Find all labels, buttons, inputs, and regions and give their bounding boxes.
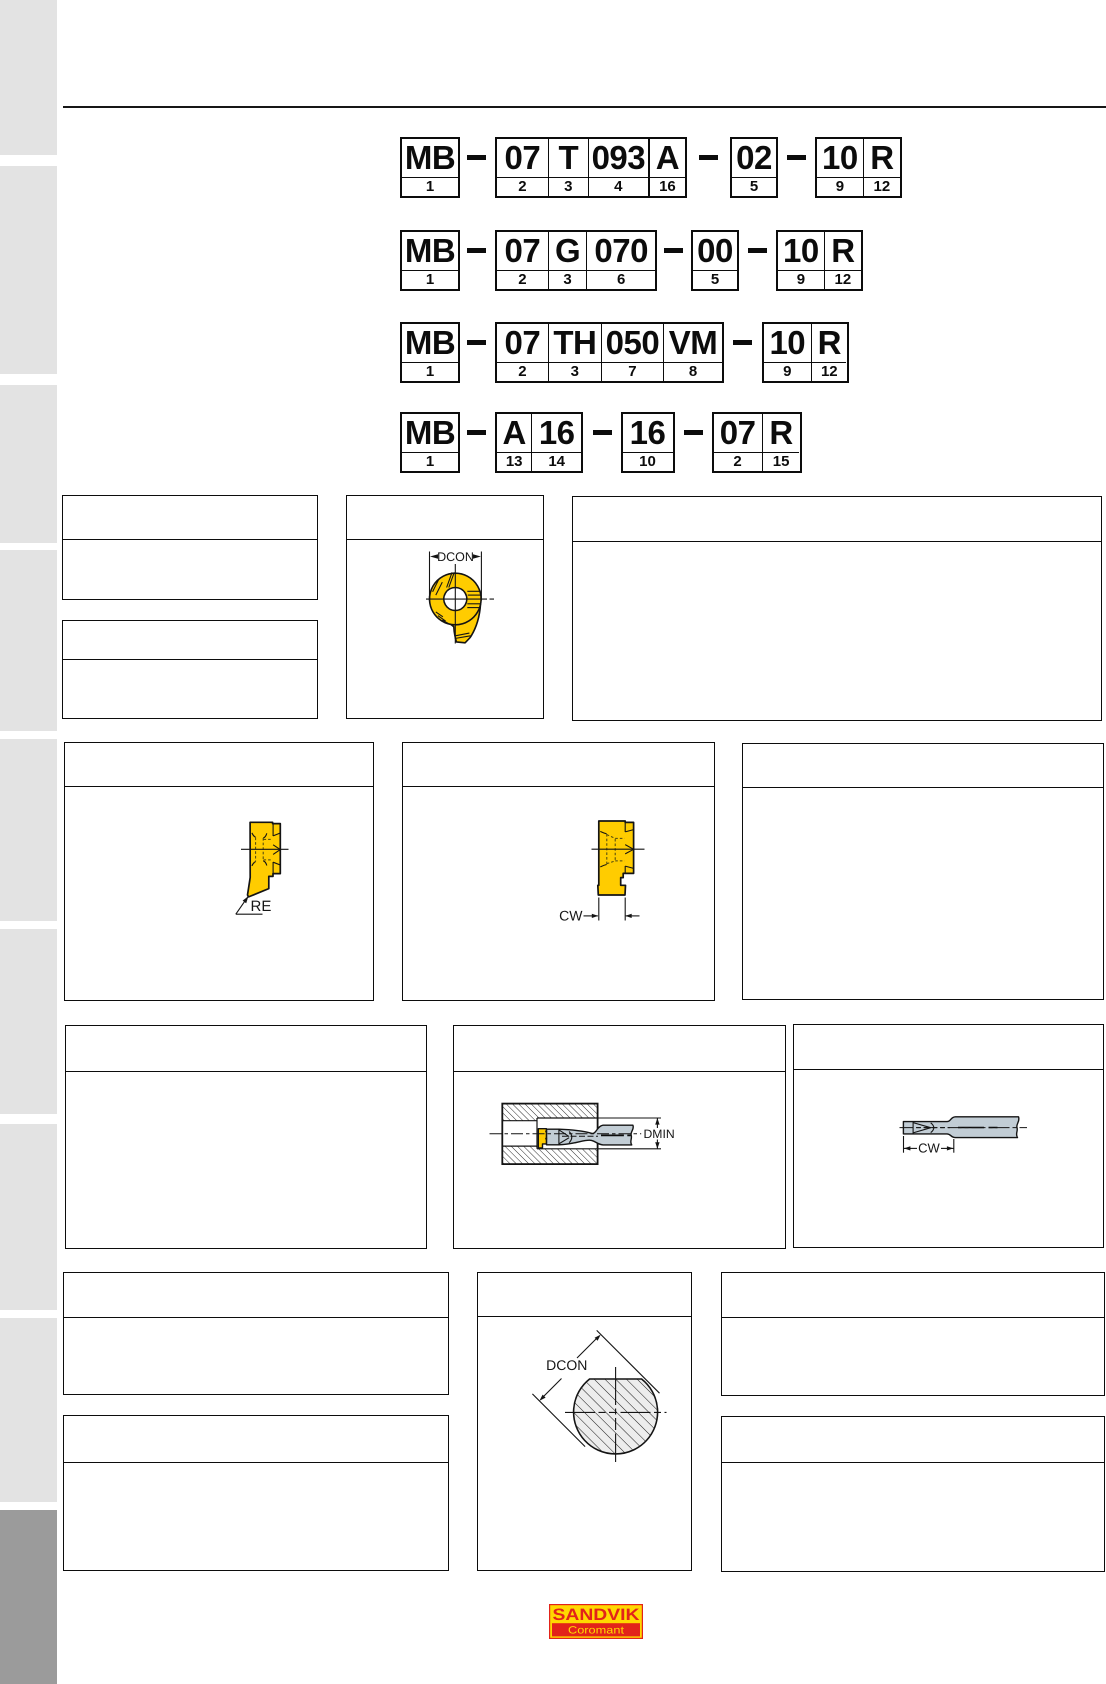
svg-text:CW: CW bbox=[918, 1141, 940, 1156]
svg-text:DCON: DCON bbox=[546, 1357, 587, 1373]
svg-text:DCON: DCON bbox=[437, 550, 474, 564]
svg-text:DMIN: DMIN bbox=[644, 1127, 675, 1141]
svg-text:CW: CW bbox=[559, 907, 583, 923]
svg-text:SANDVIK: SANDVIK bbox=[553, 1606, 640, 1624]
svg-text:RE: RE bbox=[251, 898, 272, 915]
svg-text:Coromant: Coromant bbox=[568, 1625, 624, 1637]
